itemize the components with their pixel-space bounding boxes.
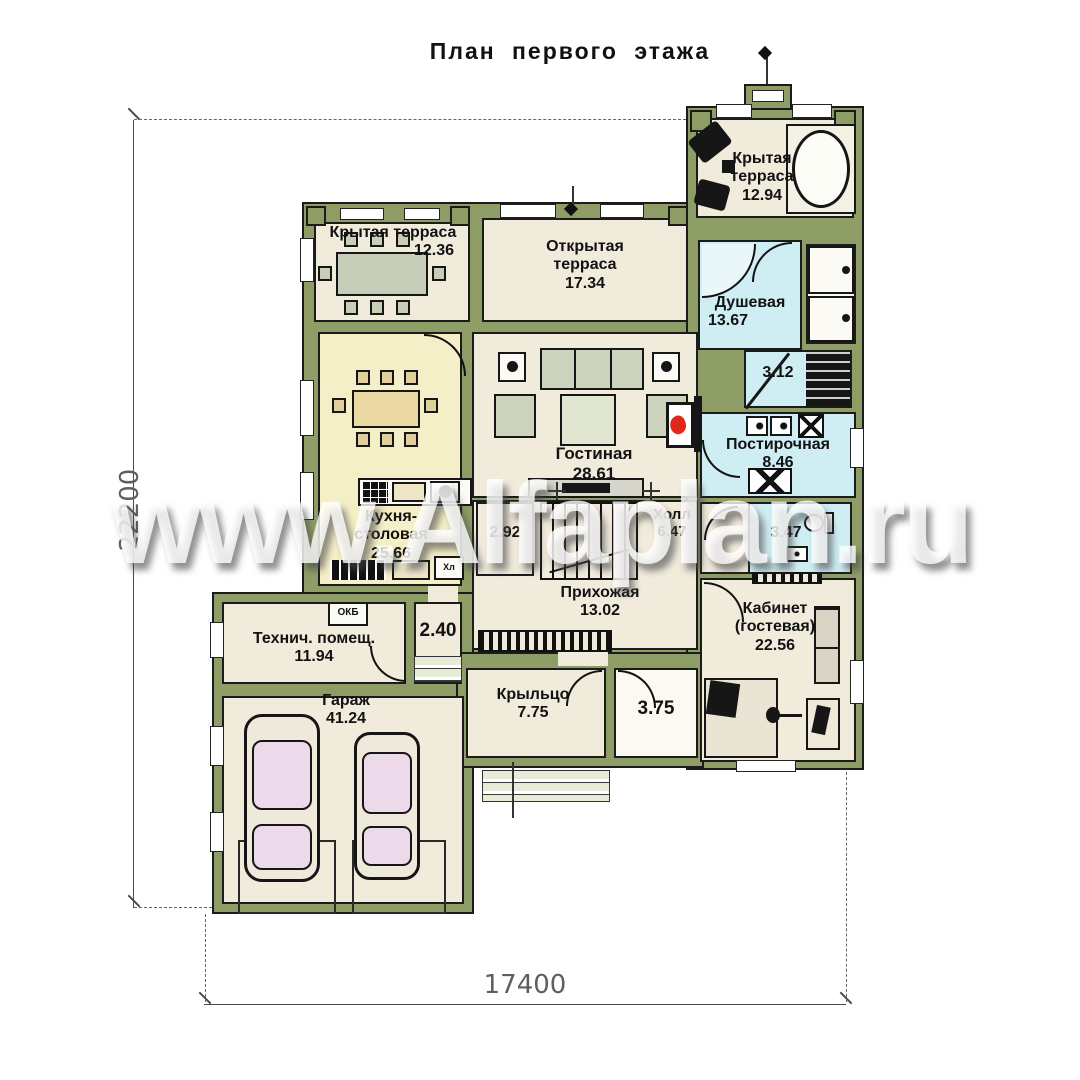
chair	[356, 432, 370, 447]
washer	[746, 416, 768, 436]
window	[300, 380, 314, 436]
window	[600, 204, 644, 218]
room-name: Кабинет (гостевая)	[708, 600, 842, 637]
chair	[380, 432, 394, 447]
room-name: Постирочная	[704, 436, 852, 454]
room-area: 17.34	[525, 275, 645, 293]
porch-axis-line	[512, 762, 514, 818]
label-shower: Душевая 13.67	[700, 294, 800, 331]
room-name: Крытая терраса	[318, 224, 468, 242]
car-glass	[252, 740, 312, 810]
cabinet-knob	[842, 314, 850, 322]
label-stair-hall: 2.40	[408, 620, 468, 642]
room-area: 13.02	[535, 602, 665, 620]
sauna-heater	[806, 352, 850, 406]
label-terrace-left: Крытая терраса 12.36	[318, 224, 468, 261]
car-glass	[362, 752, 412, 814]
chair	[370, 300, 384, 315]
chair	[432, 266, 446, 281]
chair	[380, 370, 394, 385]
window	[850, 660, 864, 704]
room-area: 13.67	[700, 312, 800, 330]
chair	[318, 266, 332, 281]
pillar	[306, 206, 326, 226]
window	[300, 238, 314, 282]
window	[792, 104, 832, 118]
chair	[332, 398, 346, 413]
room-area: 11.94	[234, 648, 394, 666]
window	[210, 726, 224, 766]
label-porch: Крыльцо 7.75	[478, 686, 588, 723]
chair	[356, 370, 370, 385]
pillar	[450, 206, 470, 226]
cabinet-knob	[842, 266, 850, 274]
porch-steps	[482, 770, 610, 802]
page-title: План первого этажа	[300, 38, 840, 65]
car-glass	[252, 824, 312, 870]
room-name: Открытая терраса	[525, 238, 645, 275]
dimension-tick	[128, 895, 141, 908]
window	[210, 812, 224, 852]
room-name: Крыльцо	[478, 686, 588, 704]
label-terrace-open: Открытая терраса 17.34	[525, 238, 645, 293]
window	[716, 104, 752, 118]
extension-line	[205, 914, 206, 1002]
pillow	[706, 680, 740, 718]
label-garage: Гараж 41.24	[286, 692, 406, 729]
extension-line	[846, 772, 847, 1002]
chair	[344, 300, 358, 315]
window	[210, 622, 224, 658]
chair	[404, 432, 418, 447]
room-name: Гараж	[286, 692, 406, 710]
room-name: Технич. помещ.	[234, 630, 394, 648]
label-vestibule: 3.75	[618, 698, 694, 720]
dimension-line-bottom	[204, 1004, 846, 1005]
room-area: 41.24	[286, 710, 406, 728]
laundry-unit	[798, 414, 824, 438]
room-name: Душевая	[700, 294, 800, 312]
car-glass	[362, 826, 412, 866]
sofa	[540, 348, 644, 390]
window	[500, 204, 556, 218]
chair	[404, 370, 418, 385]
pillar	[668, 206, 688, 226]
chimney-slot	[752, 90, 784, 102]
armchair	[494, 394, 536, 438]
room-name: Крытая терраса	[712, 150, 812, 187]
label-tech: Технич. помещ. 11.94	[234, 630, 394, 667]
coffee-table	[560, 394, 616, 446]
room-area: 12.36	[318, 242, 468, 260]
floor-plan-canvas: План первого этажа	[0, 0, 1080, 1080]
lamp-dot	[661, 361, 672, 372]
window	[404, 208, 440, 220]
dimension-text: 17400	[484, 970, 567, 1000]
room-area: 12.94	[712, 187, 812, 205]
entry-wardrobe	[478, 630, 612, 652]
fireplace-wall	[694, 396, 702, 452]
opening	[558, 652, 608, 666]
lamp-dot	[507, 361, 518, 372]
small-steps	[414, 656, 462, 682]
window	[736, 760, 796, 772]
watermark: www.Alfaplan.ru	[36, 456, 1046, 590]
kitchen-table	[352, 390, 420, 428]
chair	[424, 398, 438, 413]
window	[340, 208, 384, 220]
label-office: Кабинет (гостевая) 22.56	[708, 600, 842, 655]
extension-line	[134, 907, 212, 908]
room-area: 7.75	[478, 704, 588, 722]
washer	[770, 416, 792, 436]
extension-line	[134, 119, 686, 120]
label-sauna: 3.12	[752, 364, 804, 382]
label-terrace-right: Крытая терраса 12.94	[712, 150, 812, 205]
barbell-plate	[766, 707, 780, 723]
boiler-label: ОКБ	[330, 607, 366, 619]
room-area: 22.56	[708, 637, 842, 655]
chair	[396, 300, 410, 315]
dimension-bottom-value: 17400	[440, 970, 610, 1000]
